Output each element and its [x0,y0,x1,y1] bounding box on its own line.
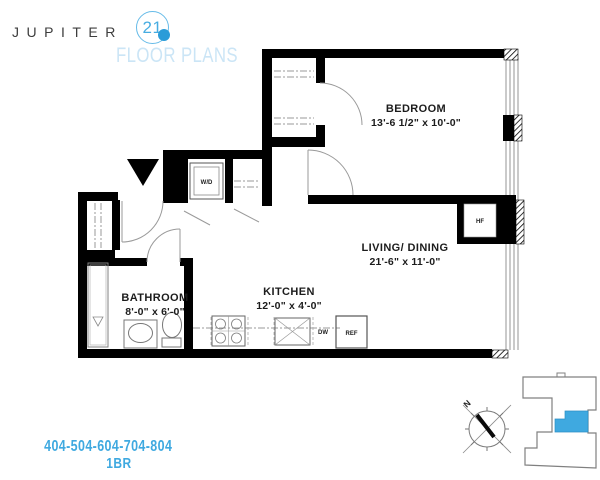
room-label-bedroom: BEDROOM [386,103,446,115]
bathtub [88,263,108,347]
footer-unit-type-row: 1BR [8,455,132,473]
room-dims-bathroom: 8'-0" x 6'-0" [125,306,185,318]
compass-north-label: N [461,398,472,410]
fan-coil-label: HF [476,219,484,225]
dishwasher-label: DW [318,330,328,336]
vanity-sink [124,320,157,348]
entry-arrow-icon [127,159,159,186]
washer-dryer-label: W/D [201,180,213,186]
footer-unit-numbers-row: 404-504-604-704-804 [8,438,132,456]
bathroom-door-swing [147,229,180,262]
kitchen-sink [275,318,310,345]
bedroom-closet-door-swing [320,83,362,125]
room-dims-living: 21'-6" x 11'-0" [369,256,440,268]
bedroom-door-swing [308,150,353,195]
door-swings [122,83,362,262]
entry-door-swing [122,201,163,242]
floor-plan-drawing: W/D [0,0,600,480]
room-labels: BEDROOM 13'-6 1/2" x 10'-0" LIVING/ DINI… [121,103,461,318]
footer-unit-type: 1BR [107,455,132,472]
stove [212,316,245,346]
room-label-bathroom: BATHROOM [121,292,188,304]
fan-coil-unit: HF [464,204,496,237]
wd-closet-door-leaf [184,211,210,225]
refrigerator-label: REF [346,331,358,337]
floor-plan-page: JUPITER 21 FLOOR PLANS [0,0,600,480]
compass: N [461,398,511,453]
footer-unit-numbers: 404-504-604-704-804 [44,438,172,456]
room-label-kitchen: KITCHEN [263,286,315,298]
room-dims-kitchen: 12'-0" x 4'-0" [256,300,322,312]
linen-closet-door-leaf [234,209,259,222]
washer-dryer: W/D [190,163,223,199]
counter-divider-lines [211,317,313,346]
room-label-living: LIVING/ DINING [362,242,449,254]
compass-needle [477,415,494,437]
kitchen-fixtures: DW REF [193,316,367,348]
building-footprint [523,373,596,468]
refrigerator: REF [336,316,367,348]
room-dims-bedroom: 13'-6 1/2" x 10'-0" [371,117,461,129]
